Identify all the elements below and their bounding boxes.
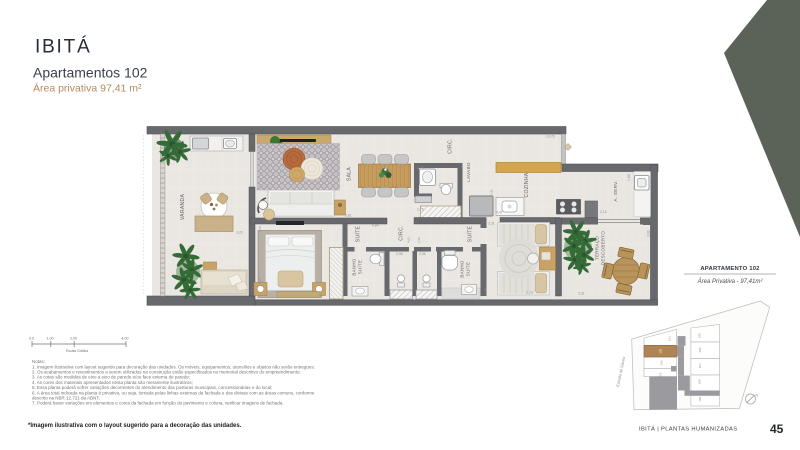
svg-text:4,84: 4,84 <box>372 224 379 228</box>
svg-text:BANHO: BANHO <box>460 260 465 277</box>
svg-text:10,76: 10,76 <box>546 135 555 139</box>
svg-text:106: 106 <box>698 347 702 352</box>
svg-text:*Imagem ilustrativa com o layo: *Imagem ilustrativa com o layout sugerid… <box>28 423 242 429</box>
svg-text:1,91: 1,91 <box>490 189 494 195</box>
svg-text:CIRC.: CIRC. <box>399 225 405 240</box>
svg-text:Notas:: Notas: <box>32 359 45 364</box>
svg-text:SALA: SALA <box>347 167 353 182</box>
svg-text:COZINHA: COZINHA <box>524 172 530 197</box>
svg-text:1,00: 1,00 <box>47 337 54 341</box>
svg-text:1,75: 1,75 <box>417 166 424 170</box>
svg-text:Apartamentos 102: Apartamentos 102 <box>33 64 148 80</box>
svg-text:4,47: 4,47 <box>496 211 503 215</box>
svg-text:3,31: 3,31 <box>578 292 585 296</box>
svg-text:104: 104 <box>659 373 663 378</box>
svg-text:3,20: 3,20 <box>236 231 243 235</box>
svg-text:A. SERV.: A. SERV. <box>613 180 618 201</box>
svg-text:103: 103 <box>660 360 664 365</box>
svg-text:Área privativa 97,41 m²: Área privativa 97,41 m² <box>33 82 142 95</box>
svg-text:SUÍTE: SUÍTE <box>355 225 362 242</box>
svg-text:TERRAÇO: TERRAÇO <box>595 236 600 260</box>
svg-text:1,55: 1,55 <box>417 237 421 243</box>
svg-text:LAVABO: LAVABO <box>466 162 471 182</box>
svg-text:108: 108 <box>698 379 702 384</box>
svg-text:Escala Gráfica: Escala Gráfica <box>66 349 88 353</box>
svg-text:45: 45 <box>770 422 784 436</box>
svg-text:SUÍTE: SUÍTE <box>358 260 363 274</box>
svg-text:BANHO: BANHO <box>352 258 357 275</box>
svg-text:IBITÁ | PLANTAS HUMANIZADAS: IBITÁ | PLANTAS HUMANIZADAS <box>639 426 737 433</box>
svg-text:1,30: 1,30 <box>258 226 262 232</box>
svg-text:102: 102 <box>659 348 663 353</box>
svg-text:4,06: 4,06 <box>407 237 411 243</box>
svg-text:2,36: 2,36 <box>419 252 426 256</box>
svg-text:APARTAMENTO 102: APARTAMENTO 102 <box>700 266 760 272</box>
svg-text:SUÍTE: SUÍTE <box>466 262 471 276</box>
svg-text:1,08: 1,08 <box>161 156 165 162</box>
svg-text:5,61: 5,61 <box>345 214 352 218</box>
svg-text:Área Privativa - 97,41m²: Área Privativa - 97,41m² <box>697 278 764 285</box>
svg-text:1,76: 1,76 <box>417 208 424 212</box>
svg-text:1,98: 1,98 <box>484 288 488 294</box>
svg-text:107: 107 <box>698 363 702 368</box>
svg-text:SUÍTE: SUÍTE <box>467 225 474 242</box>
svg-text:109: 109 <box>698 396 702 401</box>
svg-text:IBITÁ: IBITÁ <box>35 36 91 57</box>
svg-text:2,15: 2,15 <box>600 210 607 214</box>
svg-text:0,5: 0,5 <box>29 337 34 341</box>
svg-text:DESCOBERTO: DESCOBERTO <box>601 231 606 266</box>
svg-text:2,00: 2,00 <box>70 337 77 341</box>
svg-text:1,64: 1,64 <box>627 174 631 181</box>
svg-text:4,00: 4,00 <box>122 337 129 341</box>
svg-text:105: 105 <box>698 333 702 338</box>
svg-text:7. Poderá haver variações em e: 7. Poderá haver variações em elementos e… <box>32 401 284 406</box>
svg-text:3,31: 3,31 <box>488 222 495 226</box>
svg-text:CIRC.: CIRC. <box>448 138 454 153</box>
svg-text:2,70: 2,70 <box>526 291 533 295</box>
svg-text:VARANDA: VARANDA <box>180 194 186 221</box>
svg-text:3,20: 3,20 <box>258 277 262 284</box>
svg-text:2,36: 2,36 <box>396 252 403 256</box>
svg-text:3,63: 3,63 <box>647 230 651 237</box>
svg-text:101: 101 <box>668 336 672 341</box>
